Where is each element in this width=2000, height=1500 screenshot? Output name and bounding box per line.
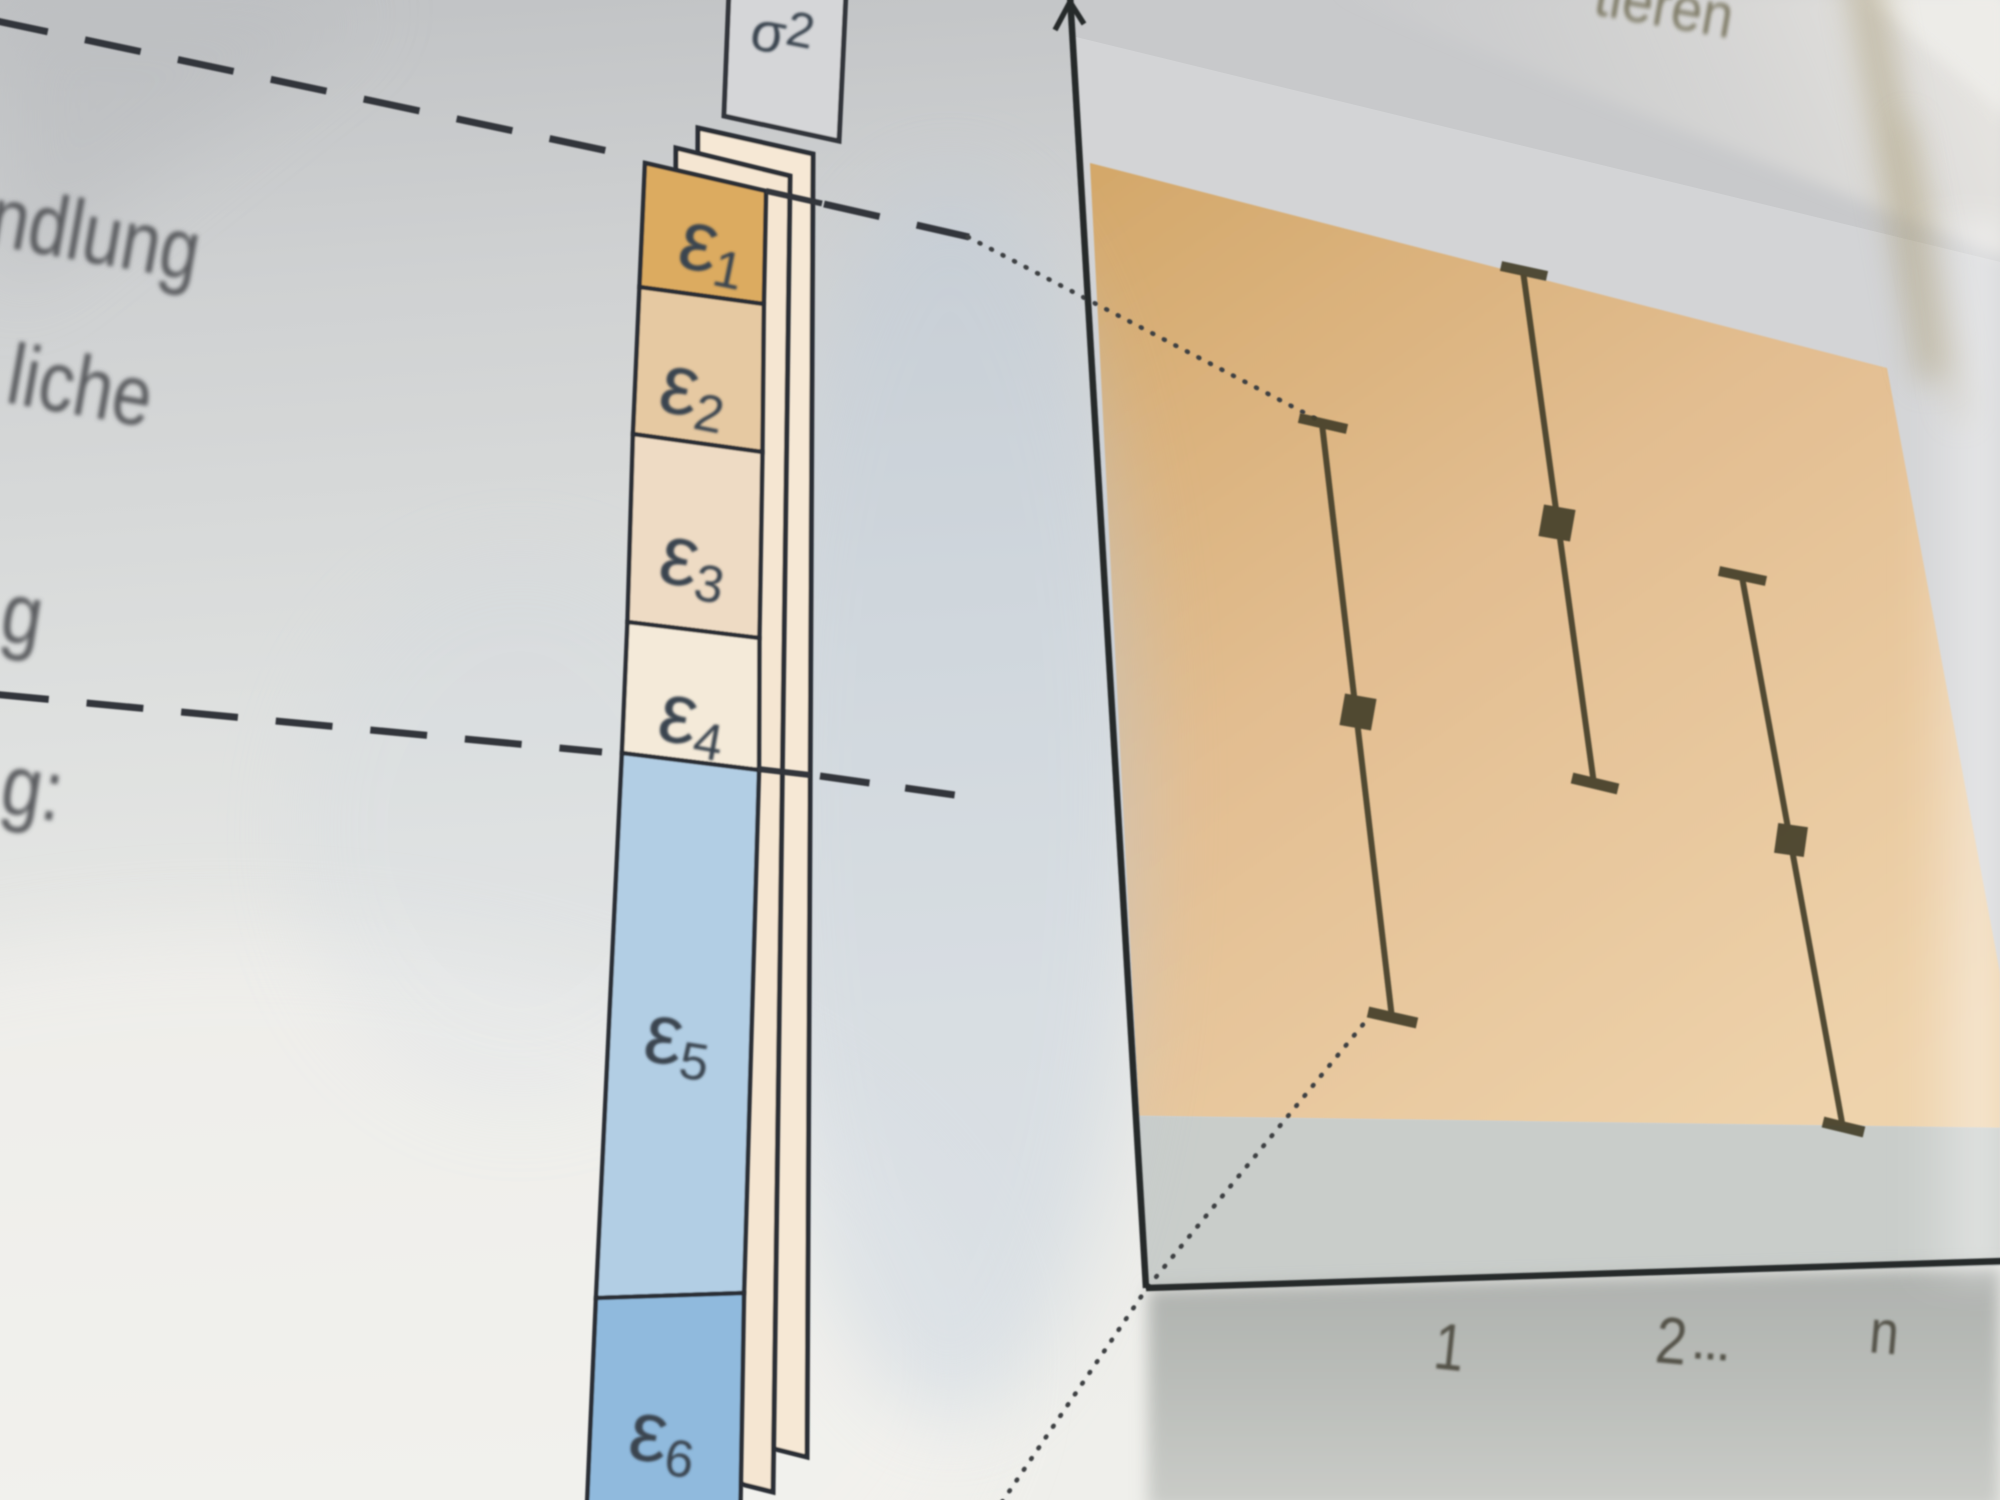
- svg-text:2: 2: [1653, 1303, 1690, 1379]
- svg-text:n: n: [1867, 1297, 1902, 1368]
- svg-text:...: ...: [1689, 1307, 1731, 1372]
